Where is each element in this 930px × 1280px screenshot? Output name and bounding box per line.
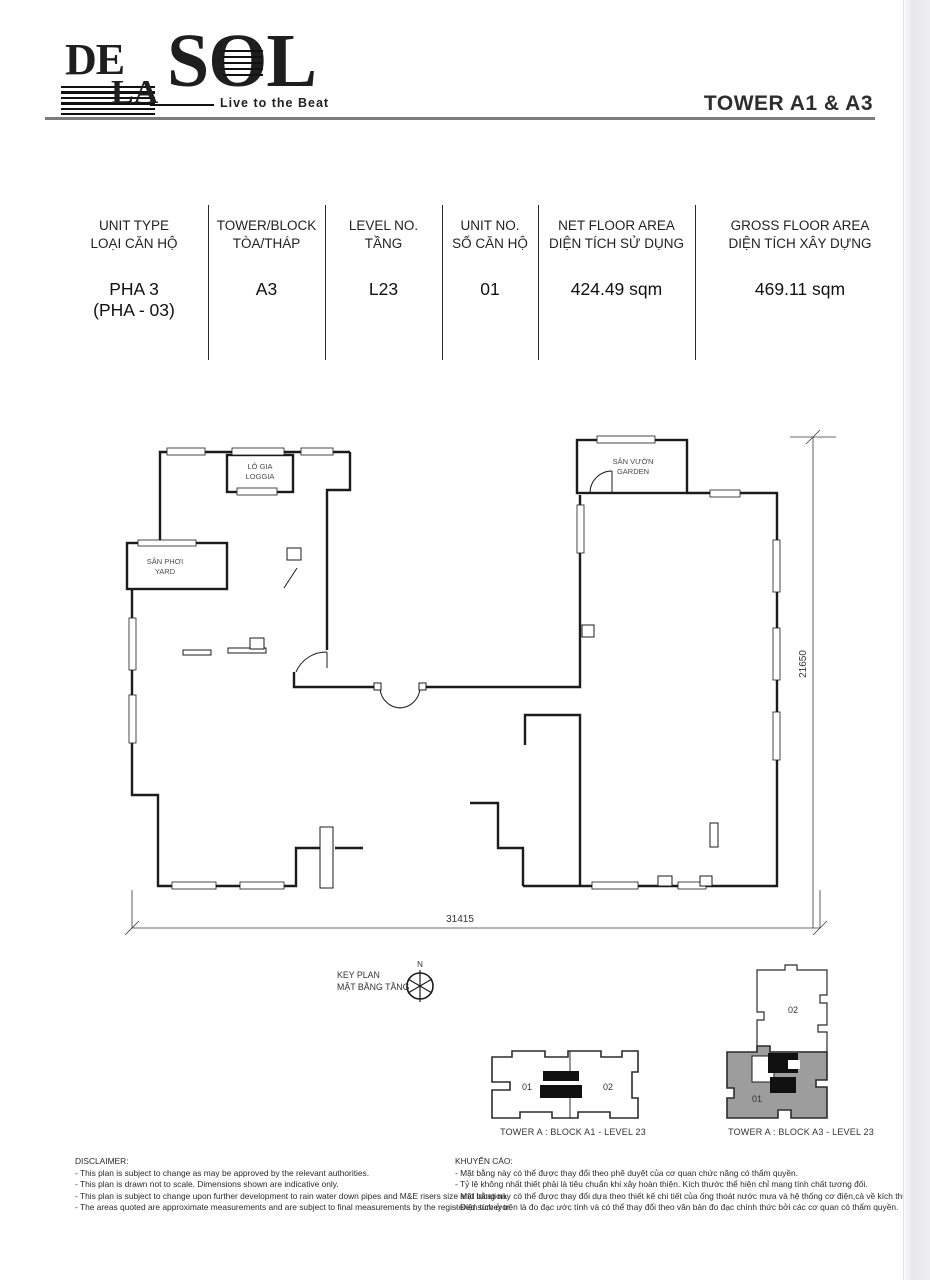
wall xyxy=(132,589,320,886)
col-header-vi: LOẠI CĂN HỘ xyxy=(60,235,208,253)
yard-box xyxy=(127,543,227,589)
wall xyxy=(525,715,580,886)
col-header-vi: SỐ CĂN HỘ xyxy=(442,235,538,253)
logo-stripe xyxy=(223,68,263,70)
door-jamb xyxy=(419,683,426,690)
tagline-rule xyxy=(150,104,214,106)
logo-stripe xyxy=(61,113,155,115)
unit-spec-table: UNIT TYPELOẠI CĂN HỘ PHA 3(PHA - 03) TOW… xyxy=(0,205,930,360)
keyplan-a3-caption: TOWER A : BLOCK A3 - LEVEL 23 xyxy=(722,1127,880,1137)
window xyxy=(138,540,196,546)
disclaimer-line: - This plan is subject to change upon fu… xyxy=(75,1191,455,1203)
spec-col-gross-area: GROSS FLOOR AREADIỆN TÍCH XÂY DỰNG 469.1… xyxy=(695,205,905,360)
spec-col-level: LEVEL NO.TẦNG L23 xyxy=(325,205,442,360)
wall-stub xyxy=(710,823,718,847)
col-value: L23 xyxy=(325,279,442,300)
advisory-line: - Mặt bằng này có thể được thay đổi dựa … xyxy=(455,1191,905,1203)
disclaimer-line: - This plan is subject to change as may … xyxy=(75,1168,455,1180)
door-arc xyxy=(590,471,612,493)
window xyxy=(232,448,284,455)
loggia-label-vi: LÔ GIA xyxy=(247,462,272,471)
window xyxy=(129,695,136,743)
col-value: A3 xyxy=(208,279,325,300)
advisory-block: KHUYẾN CÁO: - Mặt bằng này có thể được t… xyxy=(455,1156,905,1214)
fixture xyxy=(658,876,672,886)
wall xyxy=(294,672,380,687)
loggia-label-en: LOGGIA xyxy=(246,472,275,481)
fixture xyxy=(582,625,594,637)
door-leaf xyxy=(284,568,297,588)
header-divider xyxy=(45,117,875,120)
fixture xyxy=(250,638,264,649)
unit-label-02: 02 xyxy=(788,1005,798,1015)
logo-text-la: LA xyxy=(111,74,158,112)
door-arc xyxy=(296,652,327,672)
window xyxy=(129,618,136,670)
dim-width-label: 31415 xyxy=(446,914,474,925)
col-header-vi: DIỆN TÍCH XÂY DỰNG xyxy=(695,235,905,253)
col-value: 01 xyxy=(442,279,538,300)
core-gap xyxy=(788,1060,800,1069)
spec-col-unit-no: UNIT NO.SỐ CĂN HỘ 01 xyxy=(442,205,538,360)
wall xyxy=(470,803,523,886)
col-header-en: UNIT NO. xyxy=(442,217,538,235)
wall xyxy=(420,495,580,687)
disclaimer-line: - This plan is drawn not to scale. Dimen… xyxy=(75,1179,455,1191)
col-header-vi: DIỆN TÍCH SỬ DỤNG xyxy=(538,235,695,253)
unit-label-01: 01 xyxy=(522,1082,532,1092)
door-jamb xyxy=(374,683,381,690)
spec-col-tower-block: TOWER/BLOCKTÒA/THÁP A3 xyxy=(208,205,325,360)
window xyxy=(773,712,780,760)
unit-label-01: 01 xyxy=(752,1094,762,1104)
logo-stripe xyxy=(223,50,263,52)
core-block xyxy=(770,1077,796,1093)
window xyxy=(592,882,638,889)
col-header-en: NET FLOOR AREA xyxy=(538,217,695,235)
keyplan-a1-outline xyxy=(492,1051,638,1118)
dim-height-label: 21650 xyxy=(798,650,809,678)
advisory-line: - Mặt bằng này có thể được thay đổi theo… xyxy=(455,1168,905,1180)
disclaimer-block: DISCLAIMER: - This plan is subject to ch… xyxy=(75,1156,455,1214)
keyplan-block-a3: 02 01 xyxy=(713,962,880,1124)
unit-label-02: 02 xyxy=(603,1082,613,1092)
advisory-line: - Diện tích ở trên là đo đạc ước tính và… xyxy=(455,1202,905,1214)
col-value-2: (PHA - 03) xyxy=(60,300,208,321)
col-header-en: TOWER/BLOCK xyxy=(208,217,325,235)
logo-tagline: Live to the Beat xyxy=(220,96,329,110)
disclaimer-title: DISCLAIMER: xyxy=(75,1156,455,1168)
garden-label-en: GARDEN xyxy=(617,467,649,476)
logo-stripe xyxy=(223,62,263,64)
page-title: TOWER A1 & A3 xyxy=(704,92,873,116)
compass-north-label: N xyxy=(417,960,423,969)
floor-plan-sheet: DE LA SOL Live to the Beat TOWER A1 & A3… xyxy=(0,0,930,1280)
window xyxy=(597,436,655,443)
window xyxy=(172,882,216,889)
wall-pier xyxy=(320,827,333,888)
advisory-title: KHUYẾN CÁO: xyxy=(455,1156,905,1168)
col-header-en: LEVEL NO. xyxy=(325,217,442,235)
floor-plan-drawing: LÔ GIA LOGGIA SÂN PHƠI YARD SÂN VƯỜN GAR… xyxy=(0,415,930,935)
col-value: 469.11 sqm xyxy=(695,279,905,300)
window xyxy=(773,628,780,680)
de-la-sol-logo: DE LA SOL Live to the Beat xyxy=(55,22,335,122)
garden-label-vi: SÂN VƯỜN xyxy=(613,457,654,466)
core-block xyxy=(543,1071,579,1081)
logo-stripe xyxy=(223,56,263,58)
window xyxy=(577,505,584,553)
col-header-en: UNIT TYPE xyxy=(60,217,208,235)
window xyxy=(710,490,740,497)
keyplan-block-a1: 01 02 xyxy=(485,1045,660,1125)
entry-double-door xyxy=(380,687,420,708)
wall xyxy=(327,452,350,650)
window xyxy=(167,448,205,455)
col-header-vi: TÒA/THÁP xyxy=(208,235,325,253)
window xyxy=(773,540,780,592)
fixture xyxy=(700,876,712,886)
disclaimer-line: - The areas quoted are approximate measu… xyxy=(75,1202,455,1214)
window xyxy=(237,488,277,495)
logo-stripe xyxy=(223,74,263,76)
north-compass-icon: N xyxy=(398,958,442,1006)
col-header-vi: TẦNG xyxy=(325,235,442,253)
window xyxy=(240,882,284,889)
col-value: 424.49 sqm xyxy=(538,279,695,300)
fixture xyxy=(287,548,301,560)
yard-label-en: YARD xyxy=(155,567,176,576)
core-block xyxy=(540,1085,582,1098)
window xyxy=(301,448,333,455)
advisory-line: - Tỷ lệ không nhất thiết phải là tiêu ch… xyxy=(455,1179,905,1191)
wall xyxy=(523,493,777,886)
yard-label-vi: SÂN PHƠI xyxy=(147,557,183,566)
counter xyxy=(183,650,211,655)
scan-edge xyxy=(903,0,930,1280)
keyplan-a1-caption: TOWER A : BLOCK A1 - LEVEL 23 xyxy=(488,1127,658,1137)
spec-col-unit-type: UNIT TYPELOẠI CĂN HỘ PHA 3(PHA - 03) xyxy=(60,205,208,360)
col-value: PHA 3 xyxy=(60,279,208,300)
col-header-en: GROSS FLOOR AREA xyxy=(695,217,905,235)
spec-col-net-area: NET FLOOR AREADIỆN TÍCH SỬ DỤNG 424.49 s… xyxy=(538,205,695,360)
